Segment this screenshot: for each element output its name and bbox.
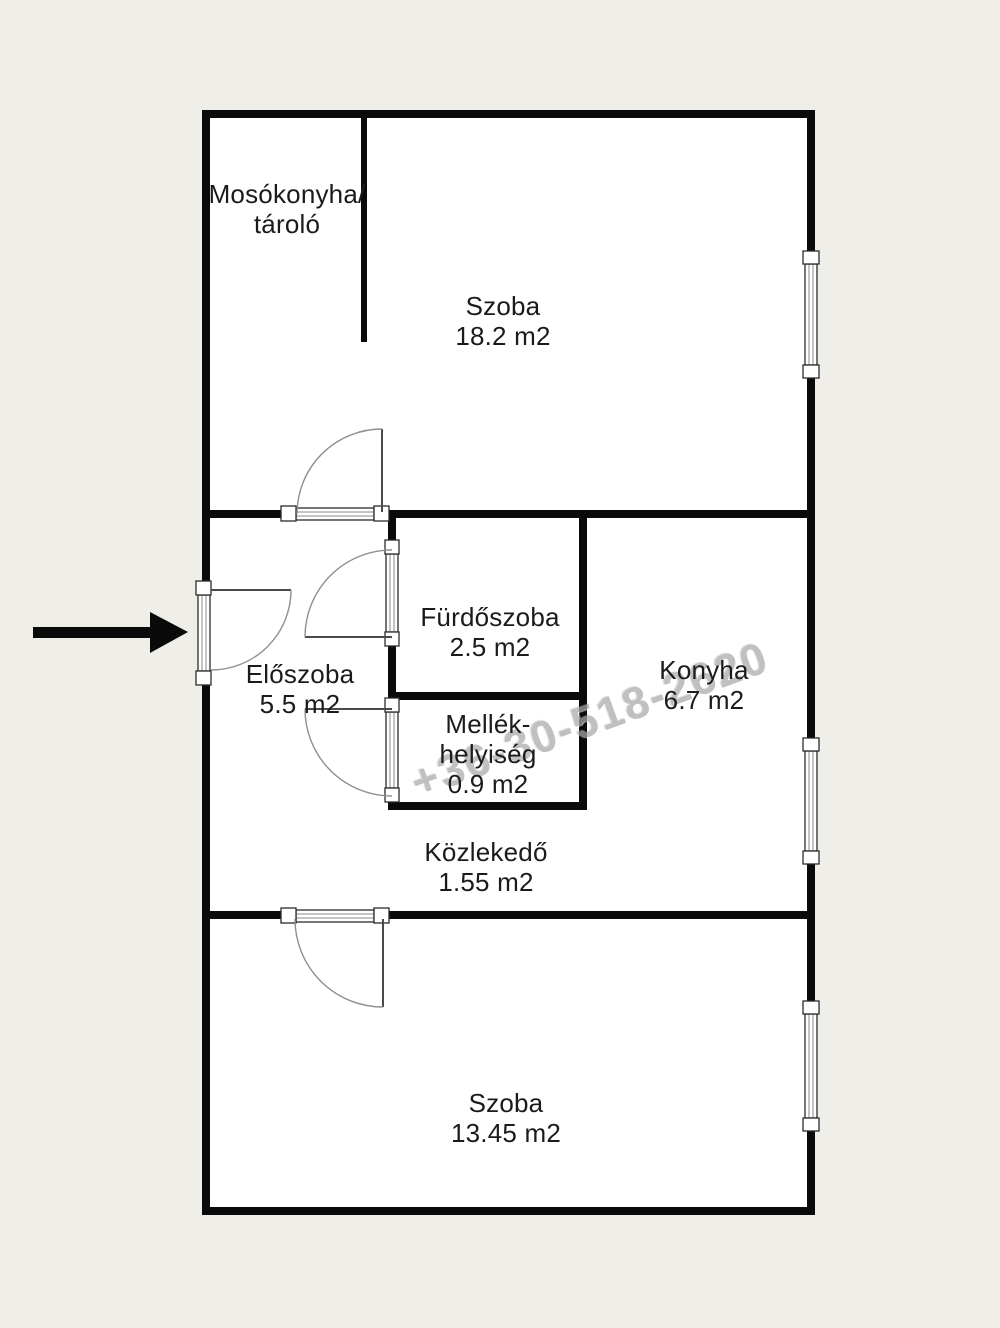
room-area: 1.55 m2 <box>376 867 596 897</box>
floor-plan-page: +36-30-518-2620 Mosókonyha/ tároló Szoba… <box>0 0 1000 1328</box>
room-label-szoba-also: Szoba 13.45 m2 <box>396 1088 616 1148</box>
room-name: Előszoba <box>190 659 410 689</box>
room-label-mellekhelyiseg: Mellék- helyiség 0.9 m2 <box>378 709 598 799</box>
window-jamb <box>803 1118 819 1131</box>
door-jamb <box>281 506 296 521</box>
window-upper-szoba <box>803 251 819 378</box>
entrance-arrow-icon <box>33 612 188 653</box>
room-name: Fürdőszoba <box>380 602 600 632</box>
room-label-szoba-felso: Szoba 18.2 m2 <box>393 291 613 351</box>
window-frame <box>805 264 817 365</box>
window-jamb <box>803 738 819 751</box>
room-area: 2.5 m2 <box>380 632 600 662</box>
window-jamb <box>803 1001 819 1014</box>
door-jamb <box>374 908 389 923</box>
door-jamb <box>385 540 399 554</box>
window-jamb <box>803 851 819 864</box>
door-panel <box>296 910 374 922</box>
room-area: 13.45 m2 <box>396 1118 616 1148</box>
window-jamb <box>803 365 819 378</box>
room-name: Mosókonyha/ <box>177 179 397 209</box>
window-frame <box>805 1014 817 1118</box>
door-jamb <box>281 908 296 923</box>
window-konyha <box>803 738 819 864</box>
room-label-eloszoba: Előszoba 5.5 m2 <box>190 659 410 719</box>
room-name: Konyha <box>594 655 814 685</box>
room-label-konyha: Konyha 6.7 m2 <box>594 655 814 715</box>
room-area: 5.5 m2 <box>190 689 410 719</box>
door-jamb <box>196 581 211 595</box>
room-area: 0.9 m2 <box>378 769 598 799</box>
room-area: 18.2 m2 <box>393 321 613 351</box>
window-frame <box>805 751 817 851</box>
room-label-furdoszoba: Fürdőszoba 2.5 m2 <box>380 602 600 662</box>
door-panel <box>296 508 374 520</box>
room-name: Mellék- <box>378 709 598 739</box>
window-jamb <box>803 251 819 264</box>
room-name: helyiség <box>378 739 598 769</box>
window-lower-szoba <box>803 1001 819 1131</box>
room-name: Szoba <box>393 291 613 321</box>
room-name: Szoba <box>396 1088 616 1118</box>
room-name: Közlekedő <box>376 837 596 867</box>
room-label-mosokonyha-tarolo: Mosókonyha/ tároló <box>177 179 397 239</box>
room-name: tároló <box>177 209 397 239</box>
room-label-kozlekedo: Közlekedő 1.55 m2 <box>376 837 596 897</box>
room-area: 6.7 m2 <box>594 685 814 715</box>
